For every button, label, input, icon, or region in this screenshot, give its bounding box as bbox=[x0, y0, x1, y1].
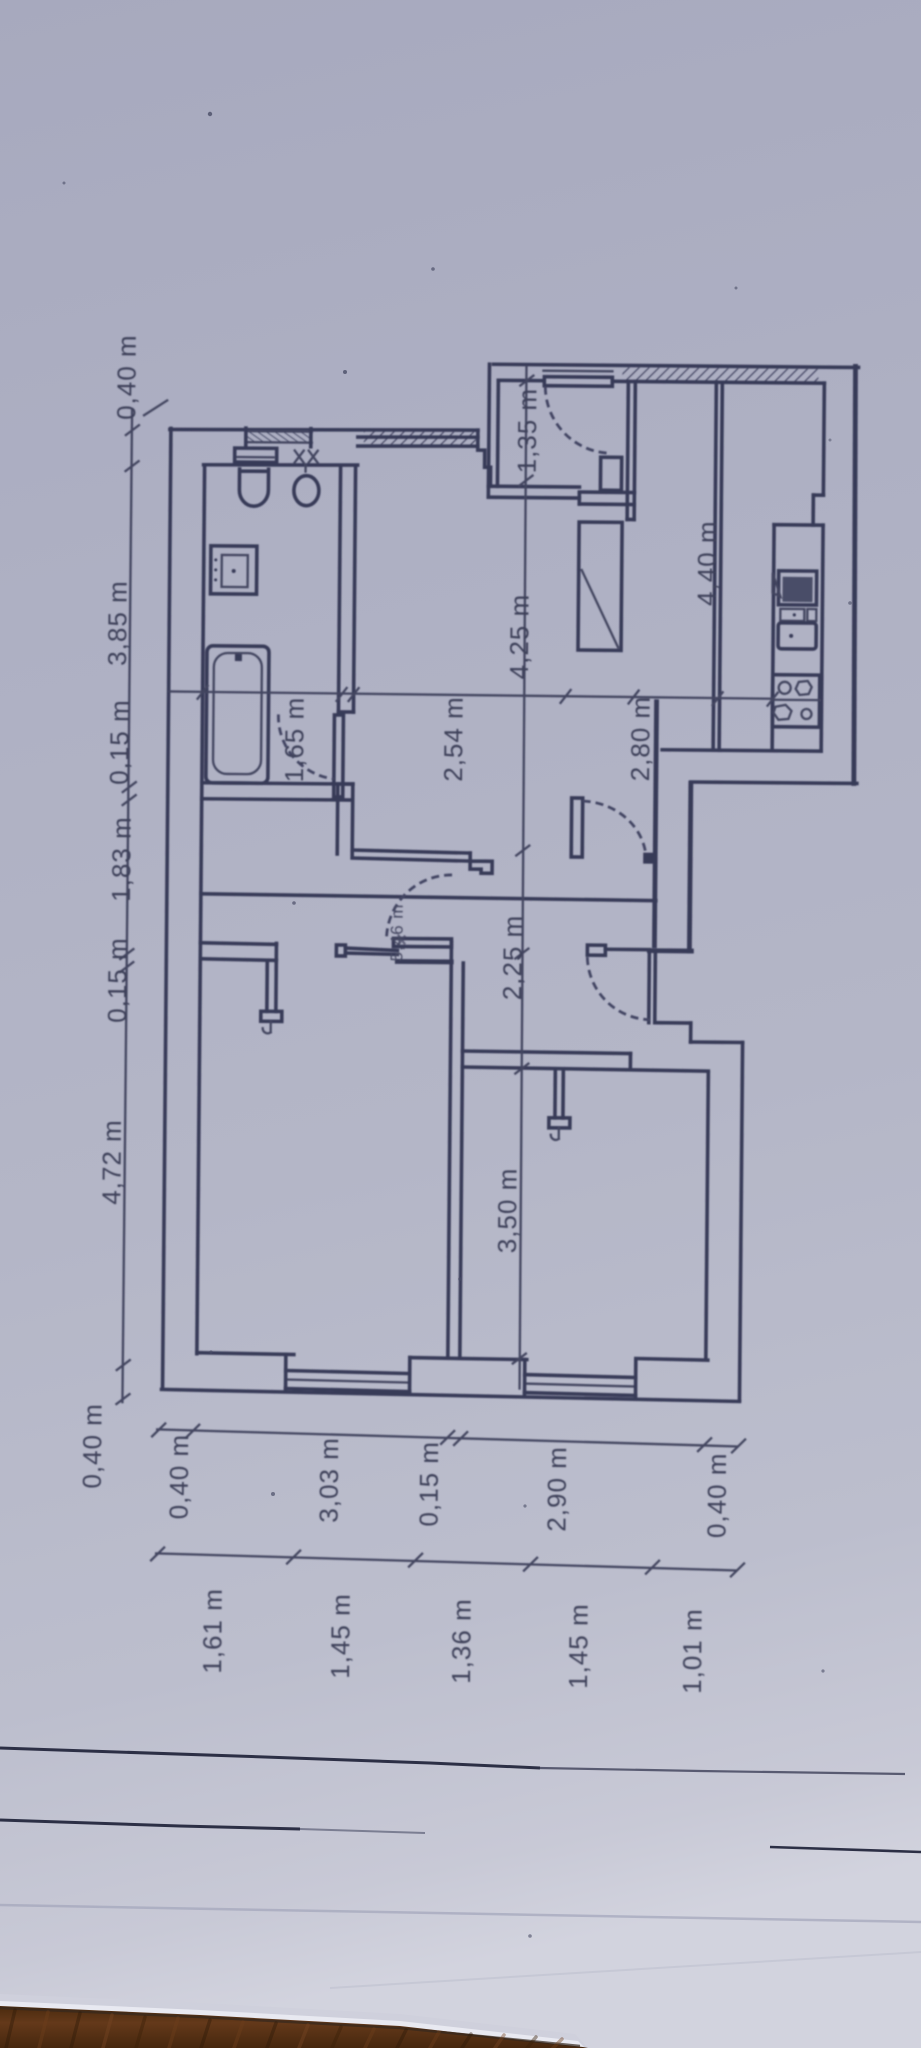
svg-text:0,40 m: 0,40 m bbox=[111, 334, 142, 420]
svg-text:0,40 m: 0,40 m bbox=[164, 1434, 195, 1520]
svg-text:1,61 m: 1,61 m bbox=[197, 1588, 228, 1674]
svg-text:1,36 m: 1,36 m bbox=[446, 1598, 477, 1684]
svg-text:2,80 m: 2,80 m bbox=[625, 696, 656, 782]
svg-text:0,40 m: 0,40 m bbox=[77, 1403, 108, 1489]
svg-text:3,85 m: 3,85 m bbox=[102, 580, 133, 666]
svg-text:2,54 m: 2,54 m bbox=[438, 696, 469, 782]
svg-text:2,25 m: 2,25 m bbox=[497, 915, 528, 1001]
svg-text:3,03 m: 3,03 m bbox=[313, 1437, 344, 1523]
svg-text:5,46 m: 5,46 m bbox=[387, 903, 407, 961]
svg-text:1,83 m: 1,83 m bbox=[106, 816, 137, 902]
svg-text:1,35 m: 1,35 m bbox=[512, 388, 543, 474]
svg-text:1,01 m: 1,01 m bbox=[677, 1608, 708, 1694]
svg-text:0,15 m: 0,15 m bbox=[104, 699, 135, 785]
svg-text:0,40 m: 0,40 m bbox=[701, 1452, 732, 1538]
svg-text:1,65 m: 1,65 m bbox=[279, 697, 310, 783]
svg-text:4,40 m: 4,40 m bbox=[692, 520, 723, 606]
svg-text:0,15 m: 0,15 m bbox=[413, 1441, 444, 1527]
svg-text:0,15 m: 0,15 m bbox=[102, 937, 133, 1023]
svg-text:1,45 m: 1,45 m bbox=[325, 1593, 356, 1679]
svg-text:1,45 m: 1,45 m bbox=[563, 1603, 594, 1689]
svg-text:2,90 m: 2,90 m bbox=[541, 1446, 572, 1532]
svg-text:4,25 m: 4,25 m bbox=[504, 594, 535, 680]
svg-text:4,72 m: 4,72 m bbox=[96, 1119, 127, 1205]
svg-text:3,50 m: 3,50 m bbox=[492, 1168, 523, 1254]
